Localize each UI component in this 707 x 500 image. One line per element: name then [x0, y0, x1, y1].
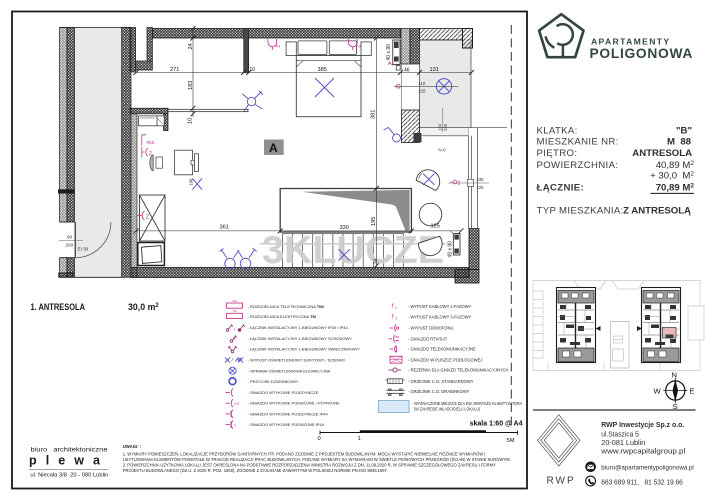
svg-text:N: N	[672, 371, 677, 380]
svg-text:www.rwpcapitalgroup.pl: www.rwpcapitalgroup.pl	[600, 446, 686, 455]
svg-text:TM: TM	[233, 309, 238, 313]
svg-text:1. ANTRESOLA: 1. ANTRESOLA	[31, 302, 86, 312]
svg-text:biuro@apartamentypoligonowa.pl: biuro@apartamentypoligonowa.pl	[601, 465, 694, 472]
svg-text:3KLUCZE: 3KLUCZE	[262, 229, 444, 272]
svg-text:ul. Niecała 3/8 20 - 080 Lubl: ul. Niecała 3/8 20 - 080 Lublin	[30, 473, 108, 479]
svg-text:131: 131	[430, 67, 439, 73]
svg-text:- GNIAZDO W PUSZCE PODŁOGOWEJ: - GNIAZDO W PUSZCE PODŁOGOWEJ	[408, 357, 482, 362]
svg-text:- GRZEJNIK C.O. STANDARDOWY: - GRZEJNIK C.O. STANDARDOWY	[408, 379, 474, 384]
svg-text:0: 0	[318, 436, 321, 442]
svg-text:KLATKA:: KLATKA:	[537, 126, 578, 137]
svg-text:110: 110	[419, 81, 426, 86]
svg-text:- GNIAZDO WTYKOWE POJEDYNCZE I: - GNIAZDO WTYKOWE POJEDYNCZE IP44	[248, 411, 329, 416]
svg-text:24: 24	[188, 43, 194, 49]
svg-text:(W ZAKRESIE WŁAŚCICIELA LOKALU: (W ZAKRESIE WŁAŚCICIELA LOKALU)	[414, 407, 481, 412]
svg-text:- GNIAZDO WTYKOWE PODWÓJNE / P: - GNIAZDO WTYKOWE PODWÓJNE / POTRÓJNE	[248, 401, 341, 406]
svg-text:TIM: TIM	[232, 299, 237, 303]
svg-text:E: E	[690, 387, 695, 396]
svg-text:biuro architektoniczne: biuro architektoniczne	[31, 447, 109, 454]
svg-text:- GRZEJNIK C.O. DRABINKOWY: - GRZEJNIK C.O. DRABINKOWY	[408, 389, 470, 394]
svg-text:- GNIAZDO RTV/SAT: - GNIAZDO RTV/SAT	[408, 336, 448, 341]
svg-text:30,0 m2: 30,0 m2	[128, 302, 159, 312]
svg-text:TYP MIESZKANIA:: TYP MIESZKANIA:	[537, 206, 624, 217]
svg-text:- GNIAZDO TELEKOMUNIKACYJNE: - GNIAZDO TELEKOMUNIKACYJNE	[408, 347, 476, 352]
svg-text:A: A	[269, 141, 278, 155]
svg-text:"B": "B"	[676, 126, 692, 137]
svg-text:2: 2	[234, 424, 236, 428]
svg-text:- ŁĄCZNIK INSTALACYJNY 1-BIEGU: - ŁĄCZNIK INSTALACYJNY 1-BIEGUNOWY IP20 …	[248, 325, 349, 330]
svg-text:663 689 911, 81 532 19 66: 663 689 911, 81 532 19 66	[601, 477, 683, 486]
svg-text:2. POWIERZCHNIA UŻYTKOWA LOKAL: 2. POWIERZCHNIA UŻYTKOWA LOKALU JEST OKR…	[123, 463, 496, 468]
svg-text:361: 361	[220, 225, 229, 231]
svg-text:49 x 90: 49 x 90	[448, 241, 454, 258]
svg-text:- OPRAWA OŚWIETLENIOWA ELEWACY: - OPRAWA OŚWIETLENIOWA ELEWACYJNA	[248, 368, 331, 373]
svg-text:h=0: h=0	[439, 148, 447, 153]
svg-text:10: 10	[250, 67, 256, 73]
svg-text:124: 124	[438, 123, 443, 131]
svg-text:W: W	[654, 387, 662, 396]
svg-text:POWIERZCHNIA:: POWIERZCHNIA:	[537, 160, 619, 171]
svg-text:RWP: RWP	[547, 476, 576, 487]
svg-text:10: 10	[187, 118, 193, 124]
svg-text:1: 1	[358, 436, 361, 442]
svg-text:- WYPUST KABLOWY 3-FAZOWY: - WYPUST KABLOWY 3-FAZOWY	[408, 314, 472, 319]
svg-text:235: 235	[477, 177, 485, 182]
svg-text:- REZERWA DLA GNIAZD TELEKOMUN: - REZERWA DLA GNIAZD TELEKOMUNIKACYJNYCH	[408, 368, 509, 373]
svg-text:RWP Inwestycje Sp.z o.o.: RWP Inwestycje Sp.z o.o.	[601, 420, 684, 429]
svg-text:ANTRESOLA: ANTRESOLA	[632, 148, 692, 159]
svg-text:PROJEKTU BUDOWLANEGO (DZ.U. Z: PROJEKTU BUDOWLANEGO (DZ.U. Z 2020 R. PO…	[123, 468, 388, 473]
svg-text:2: 2	[149, 151, 152, 157]
svg-text:- WYPUST KABLOWY 1-FAZOWY: - WYPUST KABLOWY 1-FAZOWY	[408, 304, 472, 309]
svg-text:2/3: 2/3	[234, 402, 239, 406]
svg-text:2: 2	[458, 181, 461, 187]
svg-text:24: 24	[373, 258, 378, 264]
svg-text:skala 1:60 @ A4: skala 1:60 @ A4	[470, 421, 523, 428]
svg-text:2: 2	[146, 213, 150, 220]
svg-text:- GNIAZDO WTYKOWE PODWÓJNE IP4: - GNIAZDO WTYKOWE PODWÓJNE IP44	[248, 422, 325, 427]
svg-text:381: 381	[370, 110, 376, 119]
svg-text:3: 3	[395, 316, 397, 320]
svg-text:PIĘTRO:: PIĘTRO:	[537, 148, 578, 159]
svg-text:271: 271	[170, 67, 179, 73]
svg-text:1: 1	[395, 306, 397, 310]
svg-text:183: 183	[188, 81, 194, 90]
svg-text:385: 385	[318, 67, 327, 73]
svg-text:- ŁĄCZNIK INSTALACYJNY 1-BIEGU: - ŁĄCZNIK INSTALACYJNY 1-BIEGUNOWY SCHOD…	[248, 336, 353, 341]
svg-text:- WYPUST OŚWIETLENIOWY SUFITOW: - WYPUST OŚWIETLENIOWY SUFITOWY / ŚCIENN…	[248, 358, 346, 363]
svg-text:+ 30,0 M2: + 30,0 M2	[650, 171, 694, 182]
svg-text:90: 90	[67, 235, 73, 240]
svg-text:- PRZYCISK DZWONKOWY: - PRZYCISK DZWONKOWY	[248, 379, 299, 384]
svg-text:- WYZNACZONE MIEJSCE DLA EW. M: - WYZNACZONE MIEJSCE DLA EW. MONTAŻU KLI…	[412, 401, 522, 406]
svg-text:- GNIAZDO WTYKOWE POJEDYNCZE: - GNIAZDO WTYKOWE POJEDYNCZE	[248, 390, 319, 395]
svg-text:/: /	[232, 358, 234, 363]
svg-text:rez.: rez.	[147, 140, 156, 146]
svg-text:125: 125	[431, 224, 440, 230]
svg-text:- ROZDZIELNICA TELETECHNICZNA: - ROZDZIELNICA TELETECHNICZNA TIM	[248, 304, 325, 309]
svg-text:plewa: plewa	[29, 454, 108, 468]
svg-text:Z ANTRESOLĄ: Z ANTRESOLĄ	[623, 206, 691, 217]
svg-text:225: 225	[419, 88, 427, 93]
svg-text:- ŁĄCZNIK INSTALACYJNY 1-BIEGU: - ŁĄCZNIK INSTALACYJNY 1-BIEGUNOWY ŚWIEC…	[248, 346, 361, 351]
svg-text:2: 2	[274, 45, 280, 48]
svg-text:POLIGONOWA: POLIGONOWA	[590, 46, 694, 61]
svg-text:/: /	[234, 327, 236, 332]
svg-text:330: 330	[340, 225, 349, 231]
svg-text:- WYPUST DOMOFONU: - WYPUST DOMOFONU	[408, 326, 453, 331]
svg-text:40 x 90: 40 x 90	[386, 44, 392, 61]
svg-text:225: 225	[477, 185, 485, 190]
svg-text:USYTUOWANIA ELEMENTÓW POWSTAŁE: USYTUOWANIA ELEMENTÓW POWSTAŁE W TRAKCIE…	[123, 457, 511, 462]
svg-text:MIESZKANIE NR:: MIESZKANIE NR:	[537, 136, 619, 147]
svg-text:200: 200	[66, 242, 74, 247]
svg-text:46: 46	[404, 68, 410, 74]
svg-text:- ROZDZIELNICA ELEKTRYCZNA TM: - ROZDZIELNICA ELEKTRYCZNA TM	[248, 314, 317, 319]
svg-text:ŁĄCZNIE:: ŁĄCZNIE:	[537, 182, 585, 193]
svg-text:5M: 5M	[507, 438, 515, 444]
svg-text:195: 195	[371, 217, 377, 226]
svg-text:70,89 M2: 70,89 M2	[656, 182, 695, 193]
svg-text:M 88: M 88	[667, 136, 692, 147]
svg-text:40,89 M2: 40,89 M2	[656, 160, 695, 171]
svg-text:2: 2	[354, 45, 360, 48]
svg-text:EI 30: EI 30	[78, 247, 89, 252]
svg-text:UWAGI: :: UWAGI: :	[123, 444, 142, 449]
svg-text:225: 225	[443, 123, 448, 131]
svg-text:1. WYMIARY POMIESZCZEŃ, LOKALI: 1. WYMIARY POMIESZCZEŃ, LOKALIZACJE PRZY…	[123, 452, 486, 457]
svg-text:180: 180	[188, 178, 193, 186]
